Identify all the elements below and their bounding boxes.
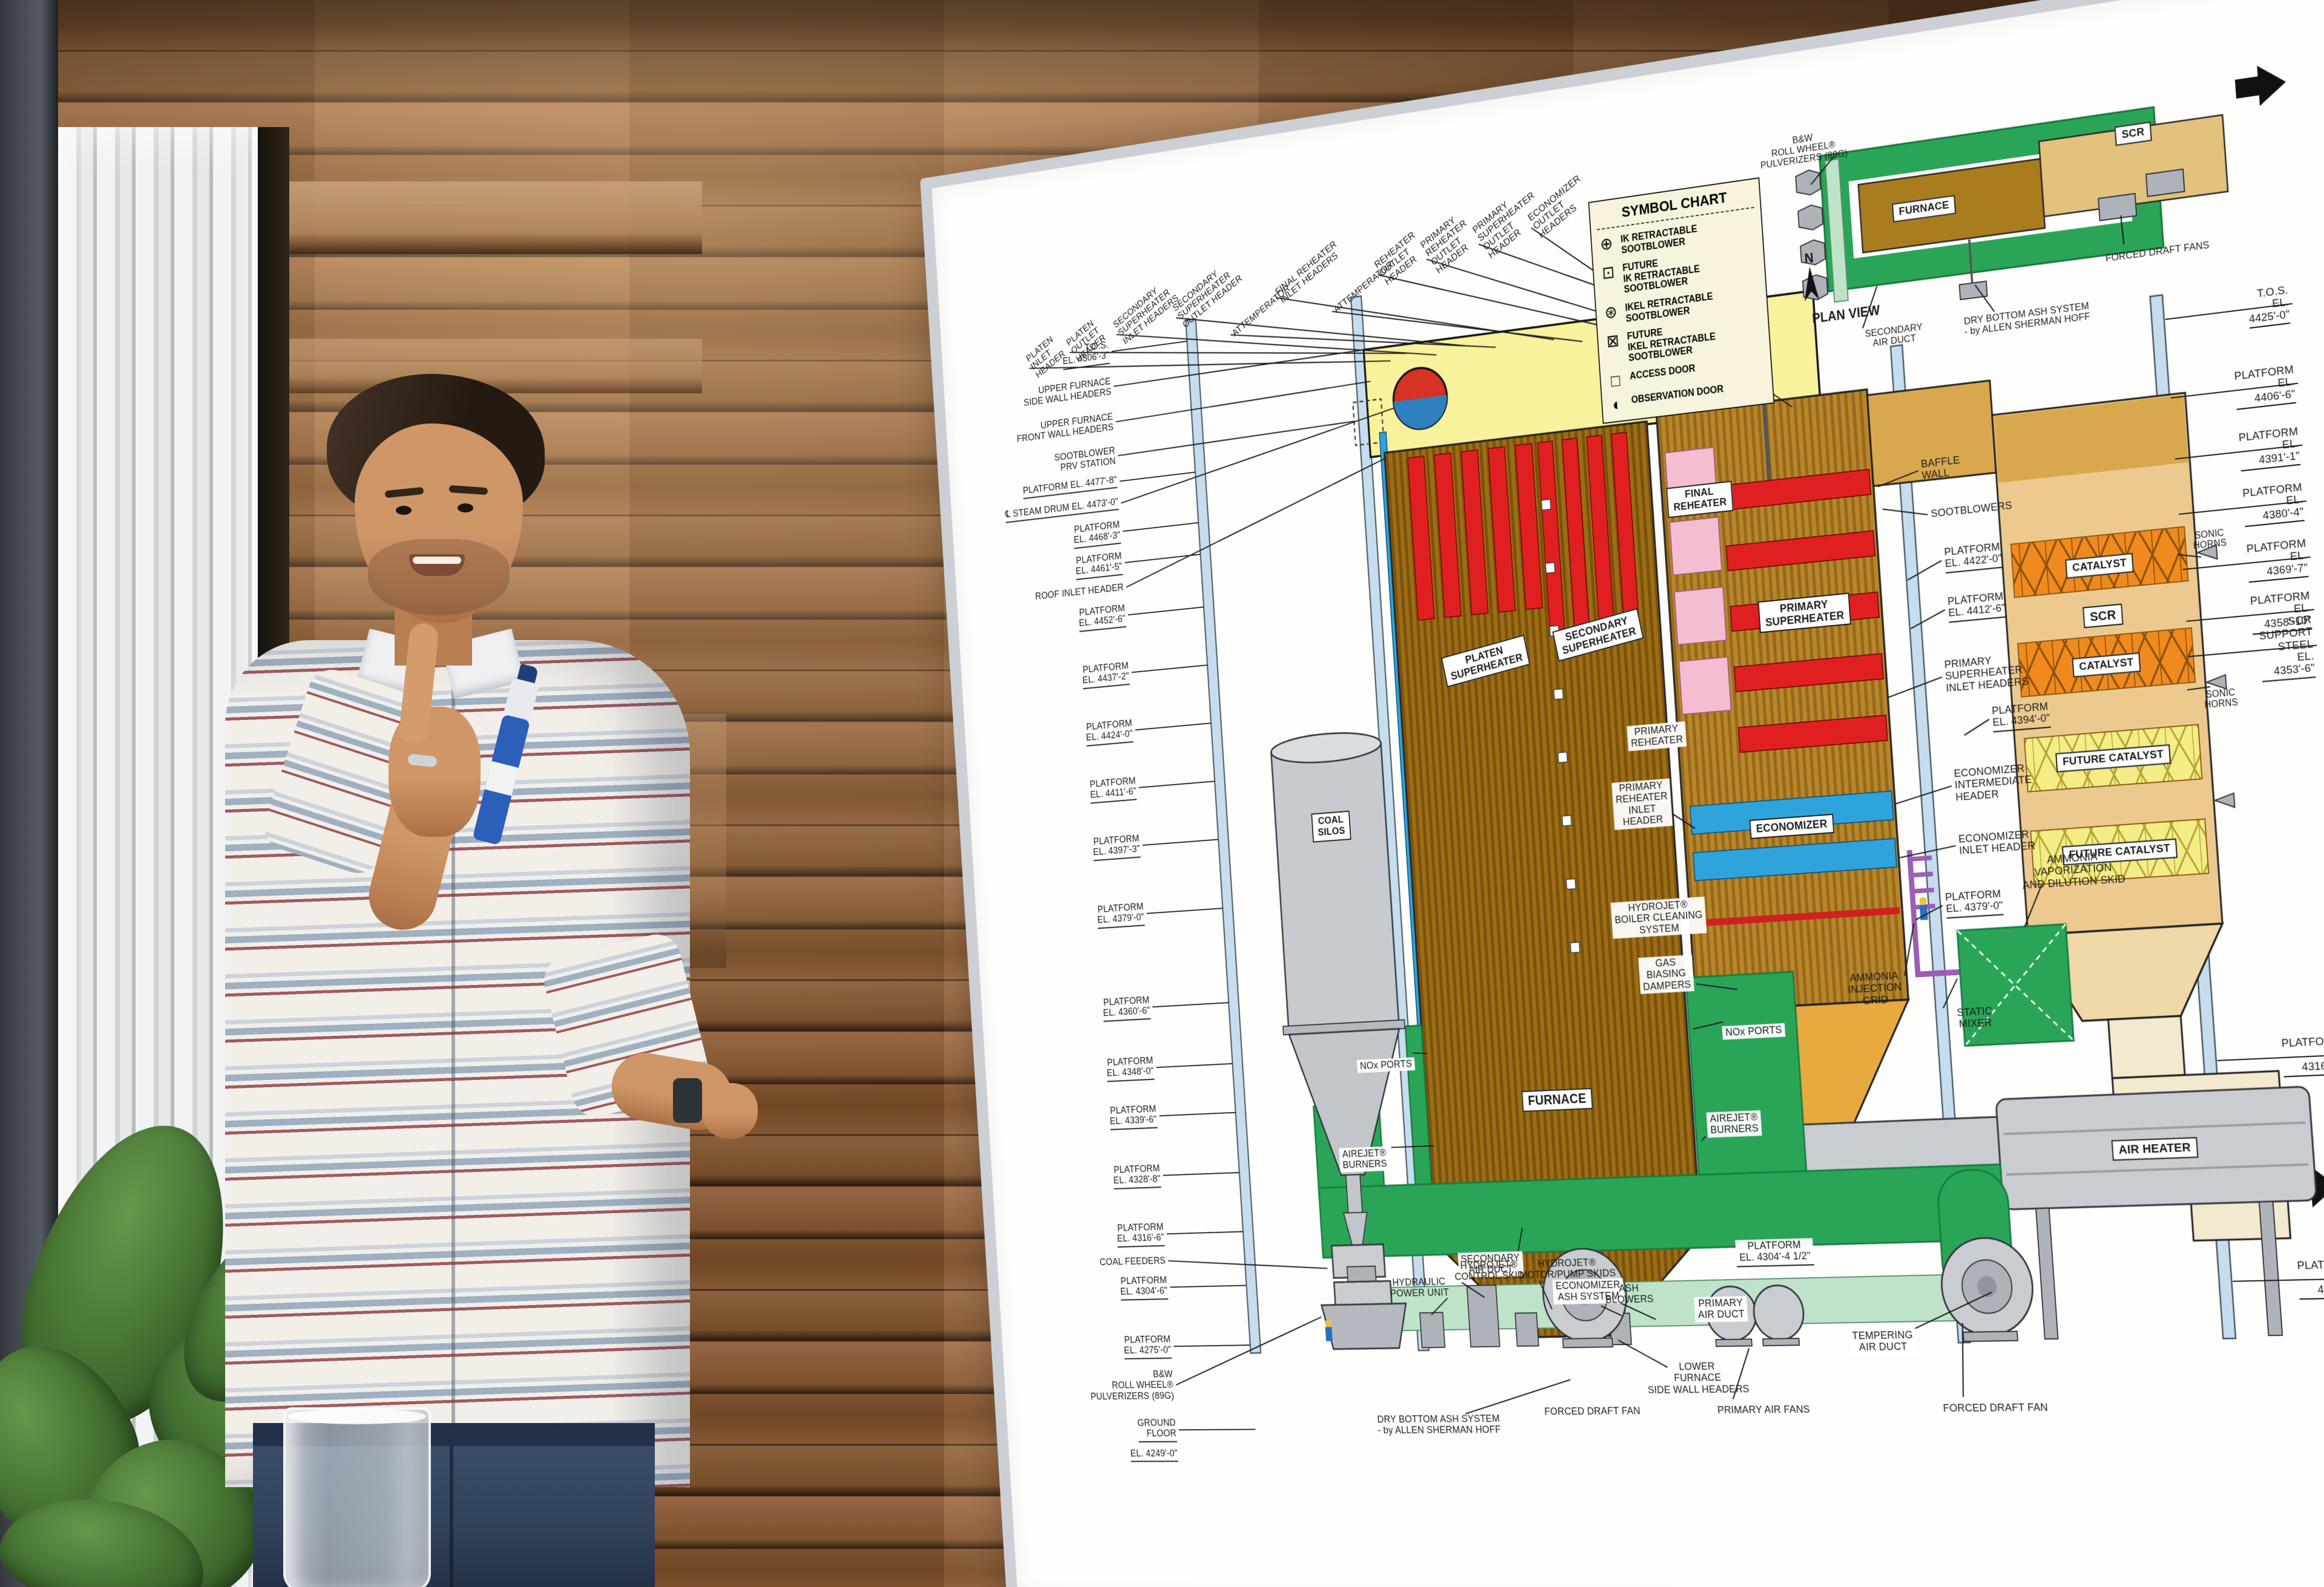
future-icon: ⊡ [1600, 264, 1618, 283]
diagram-label: T.O.S. EL. 4425'-0" [2247, 284, 2291, 329]
diagram-label: FORCED DRAFT FANS [2105, 240, 2210, 264]
diagram-label: B&W ROLL WHEEL® PULVERIZERS (89G) [1759, 128, 1848, 171]
diagram-label: PLATFORM EL. 4406'-6" [2234, 364, 2296, 410]
diagram-label: STATIC MIXER [1957, 1006, 1994, 1031]
diagram-label: FORCED DRAFT FAN [1943, 1402, 2048, 1415]
diagram-label: PLATFORM EL. 4394'-0" [1992, 701, 2051, 733]
symbol-chart-label: ACCESS DOOR [1629, 363, 1695, 382]
diagram-label: PLATFORM EL. 4461'-5" [1075, 551, 1123, 580]
diagram-label: SECONDARY AIR DUCT [1865, 322, 1924, 350]
diagram-label: DRY BOTTOM ASH SYSTEM - by ALLEN SHERMAN… [1377, 1413, 1502, 1436]
diagram-label: DRY BOTTOM ASH SYSTEM - by ALLEN SHERMAN… [1963, 301, 2090, 338]
diagram-label: HYDRAULIC POWER UNIT [1389, 1276, 1449, 1300]
diagram-label: ECONOMIZER [1749, 814, 1834, 839]
diagram-label: PLATFORM EL. 4316'-6" [1116, 1222, 1164, 1248]
diagram-label: PLATFORM EL. 4380'-4" [2242, 482, 2305, 527]
diagram-label: PLATFORM EL. 4379'-0" [1097, 901, 1145, 929]
symbol-chart-label: FUTURE IK RETRACTABLE SOOTBLOWER [1622, 252, 1701, 295]
diagram-label: TEMPERING AIR DUCT [1849, 1328, 1917, 1355]
face [355, 424, 523, 623]
ik-retractable-icon: ⊕ [1598, 235, 1616, 254]
diagram-label: PRIMARY SUPERHEATER [1758, 593, 1851, 633]
wristwatch [673, 1078, 702, 1123]
diagram-label: PLATFORM EL. 4275'-0" [1123, 1334, 1172, 1359]
diagram-label: CATALYST [2065, 553, 2134, 579]
diagram-label: PLATFORM EL. 4411'-6" [1089, 776, 1137, 803]
diagram-label: PLATFORM EL. 4328'-8" [1112, 1163, 1161, 1189]
diagram-label: UPPER FURNACE SIDE WALL HEADERS [1023, 376, 1112, 409]
diagram-label: B&W ROLL WHEEL® PULVERIZERS (89G) [1089, 1369, 1174, 1402]
hand [702, 1083, 758, 1139]
diagram-label: PLATFORM EL. 4273'-0" [2297, 1258, 2324, 1300]
diagram-label: FINAL REHEATER [1666, 481, 1733, 518]
diagram-label: PLATFORM EL. 4477'-8" [1023, 475, 1118, 499]
water-glass [283, 1407, 431, 1587]
diagram-label: LOWER FURNACE SIDE WALL HEADERS [1646, 1360, 1750, 1396]
diagram-label: PLATFORM EL. 4348'-0" [1106, 1056, 1154, 1082]
diagram-label: ℄ STEAM DRUM EL. 4473'-0" [1005, 497, 1118, 523]
diagram-label: PLATFORM EL. 4369'-7" [2246, 538, 2308, 583]
scene: T.O.S. EL. 4506'-3"UPPER FURNACE SIDE WA… [0, 0, 2324, 1587]
whiteboard-surface: T.O.S. EL. 4506'-3"UPPER FURNACE SIDE WA… [932, 0, 2324, 1587]
diagram-label: AMMONIA VAPORIZATION AND DILUTION SKID [2021, 849, 2126, 891]
diagram-label: NOx PORTS [1722, 1023, 1785, 1040]
diagram-label: SONIC HORNS [2192, 528, 2227, 551]
diagram-label: FUTURE CATALYST [2055, 744, 2171, 772]
diagram-label: UPPER FURNACE FRONT WALL HEADERS [1016, 411, 1114, 445]
diagram-label: HYDROJET® MOTOR/PUMP SKIDS [1518, 1257, 1616, 1281]
diagram-label: PRIMARY SUPERHEATER INLET HEADERS [1944, 652, 2029, 694]
whiteboard: T.O.S. EL. 4506'-3"UPPER FURNACE SIDE WA… [920, 0, 2324, 1587]
wood-plank [254, 182, 702, 254]
diagram-label: PLATFORM EL. 4304'-6" [1120, 1275, 1168, 1301]
diagram-label: PLATEN INLET HEADER [1025, 332, 1066, 380]
future-icon: ⊠ [1604, 332, 1622, 351]
boiler-scr-diagram: T.O.S. EL. 4506'-3"UPPER FURNACE SIDE WA… [973, 45, 2324, 1525]
diagram-label: PLATFORM EL. 4391'-1" [2238, 426, 2300, 471]
diagram-label: PLATFORM EL. 4339'-6" [1109, 1104, 1157, 1130]
diagram-label: HYDROJET® BOILER CLEANING SYSTEM [1610, 897, 1707, 939]
diagram-label: PLATFORM EL. 4437'-2" [1082, 661, 1130, 689]
diagram-label: SONIC HORNS [2204, 687, 2238, 710]
diagram-label: ROOF INLET HEADER [1035, 582, 1124, 602]
diagram-label: ECONOMIZER INLET HEADER [1958, 828, 2035, 857]
diagram-label: PRIMARY REHEATER [1627, 721, 1687, 751]
symbol-chart: SYMBOL CHART ⊕IK RETRACTABLE SOOTBLOWER⊡… [1588, 177, 1774, 424]
symbol-chart-label: FUTURE IKEL RETRACTABLE SOOTBLOWER [1627, 320, 1717, 364]
diagram-label: SOOTBLOWER PRV STATION [1054, 445, 1116, 474]
diagram-label: NOx PORTS [1357, 1057, 1416, 1073]
diagram-label: PRIMARY AIR FANS [1717, 1404, 1810, 1416]
smile [409, 554, 465, 576]
diagram-label: BAFFLE WALL [1921, 454, 1961, 482]
diagram-label: CATALYST [2072, 652, 2141, 678]
diagram-label: PLATEN SUPERHEATER [1441, 635, 1530, 687]
diagram-label: PLATFORM EL. 4304'-4 1/2" [1735, 1238, 1814, 1267]
diagram-label: AIR HEATER [2112, 1137, 2199, 1160]
diagram-label: FINAL REHEATER INLET HEADERS [1274, 239, 1344, 306]
diagram-label: FORCED DRAFT FAN [1544, 1405, 1641, 1418]
diagram-label: SECONDARY SUPERHEATER [1552, 608, 1644, 662]
diagram-label: PLATFORM EL. 4412'-6" [1947, 591, 2006, 623]
diagram-label: PLAN VIEW [1812, 303, 1881, 326]
diagram-label: EL. 4249'-0" [1130, 1448, 1178, 1462]
diagram-label: SECONDARY SUPERHEATER INLET HEADERS [1112, 276, 1180, 346]
diagram-label: AIREJET® BURNERS [1339, 1147, 1390, 1173]
diagram-label: SCR [2115, 122, 2152, 146]
diagram-label: ECONOMIZER INTERMEDIATE HEADER [1954, 762, 2033, 803]
diagram-label: FURNACE [1521, 1088, 1593, 1112]
diagram-label: PLATFORM EL. 4316'-6" [2281, 1035, 2324, 1078]
diagram-label: SOOTBLOWERS [1931, 500, 2013, 520]
eye [396, 506, 412, 515]
diagram-label: GROUND FLOOR [1137, 1418, 1177, 1442]
diagram-label: SECONDARY SUPERHEATER OUTLET HEADER [1172, 257, 1244, 330]
diagram-label: COAL FEEDERS [1099, 1255, 1166, 1268]
diagram-label: FURNACE [1892, 195, 1956, 222]
symbol-chart-label: OBSERVATION DOOR [1631, 384, 1724, 406]
diagram-label: ASH BLOWERS [1604, 1283, 1654, 1306]
diagram-label: ECONOMIZER OUTLET HEADERS [1526, 173, 1593, 240]
diagram-label: PRIMARY REHEATER INLET HEADER [1612, 779, 1673, 831]
diagram-label: PLATFORM EL. 4424'-0" [1085, 718, 1134, 746]
symbol-chart-label: IK RETRACTABLE SOOTBLOWER [1620, 223, 1698, 256]
diagram-label: PRIMARY AIR DUCT [1694, 1296, 1748, 1322]
eye [458, 503, 473, 512]
diagram-label: COAL SILOS [1311, 811, 1351, 842]
diagram-label: PLATFORM EL. 4468'-3" [1073, 520, 1121, 549]
access-door-icon: □ [1606, 372, 1624, 391]
diagram-label: SCR [2083, 604, 2123, 629]
diagram-label: SCR SUPPORT STEEL EL. 4353'-6" [2258, 614, 2316, 682]
diagram-label: AIREJET® BURNERS [1706, 1110, 1762, 1137]
diagram-label: PLATFORM EL. 4452'-6" [1078, 603, 1126, 632]
diagram-label: GAS BIASING DAMPERS [1638, 955, 1695, 994]
diagram-label: AMMONIA INJECTION GRID [1847, 970, 1903, 1007]
diagram-label: PLATFORM EL. 4379'-0" [1945, 889, 2004, 918]
observation-door-icon: ◐ [1608, 396, 1626, 414]
diagram-label: PRIMARY REHEATER OUTLET HEADER [1419, 210, 1479, 276]
diagram-label: N [1804, 251, 1814, 267]
diagram-label: PLATFORM EL. 4360'-6" [1102, 995, 1151, 1022]
diagram-label: HYDROJET® CONTROL SKID [1454, 1259, 1525, 1283]
ikel-retractable-icon: ⊛ [1602, 303, 1620, 322]
diagram-label: PLATFORM EL. 4422'-0" [1944, 542, 2003, 574]
symbol-chart-label: IKEL RETRACTABLE SOOTBLOWER [1625, 291, 1714, 324]
diagram-label: PLATFORM EL. 4397'-3" [1092, 834, 1141, 861]
